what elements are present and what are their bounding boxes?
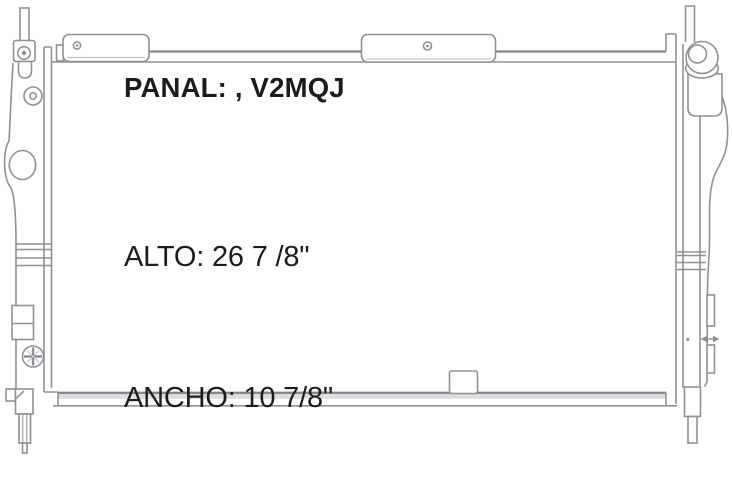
bracket-bottom-pin-icon [19,414,31,443]
top-center-mount-tab [362,35,496,63]
left-mount-bracket [5,8,52,453]
top-left-mount-tab [57,35,150,62]
spec-alto: ALTO: 26 7 /8" [124,234,365,281]
spec-ancho: ANCHO: 10 7/8" [124,375,365,422]
screw-head-icon [23,346,44,367]
radiator-spec-sheet: PANAL: , V2MQJ ALTO: 26 7 /8" ANCHO: 10 … [0,0,732,484]
panel-title: PANAL: , V2MQJ [124,71,345,105]
bracket-top-pin-icon [20,8,29,43]
left-band-lines [16,244,52,266]
lower-outlet-block [685,387,701,417]
flow-arrow-icon [686,336,719,342]
lower-outlet-pin-icon [688,417,697,444]
right-band-lines [677,252,706,270]
overflow-pipe-icon [686,6,695,42]
radiator-diagram [0,0,732,484]
bottom-mount-tab [450,371,478,394]
bracket-oval-hole-icon [9,151,35,180]
filler-neck-and-cap [686,6,723,116]
spec-list: ALTO: 26 7 /8" ANCHO: 10 7/8" GRUESO: 1 … [124,140,365,484]
right-tank-profile [677,96,728,443]
